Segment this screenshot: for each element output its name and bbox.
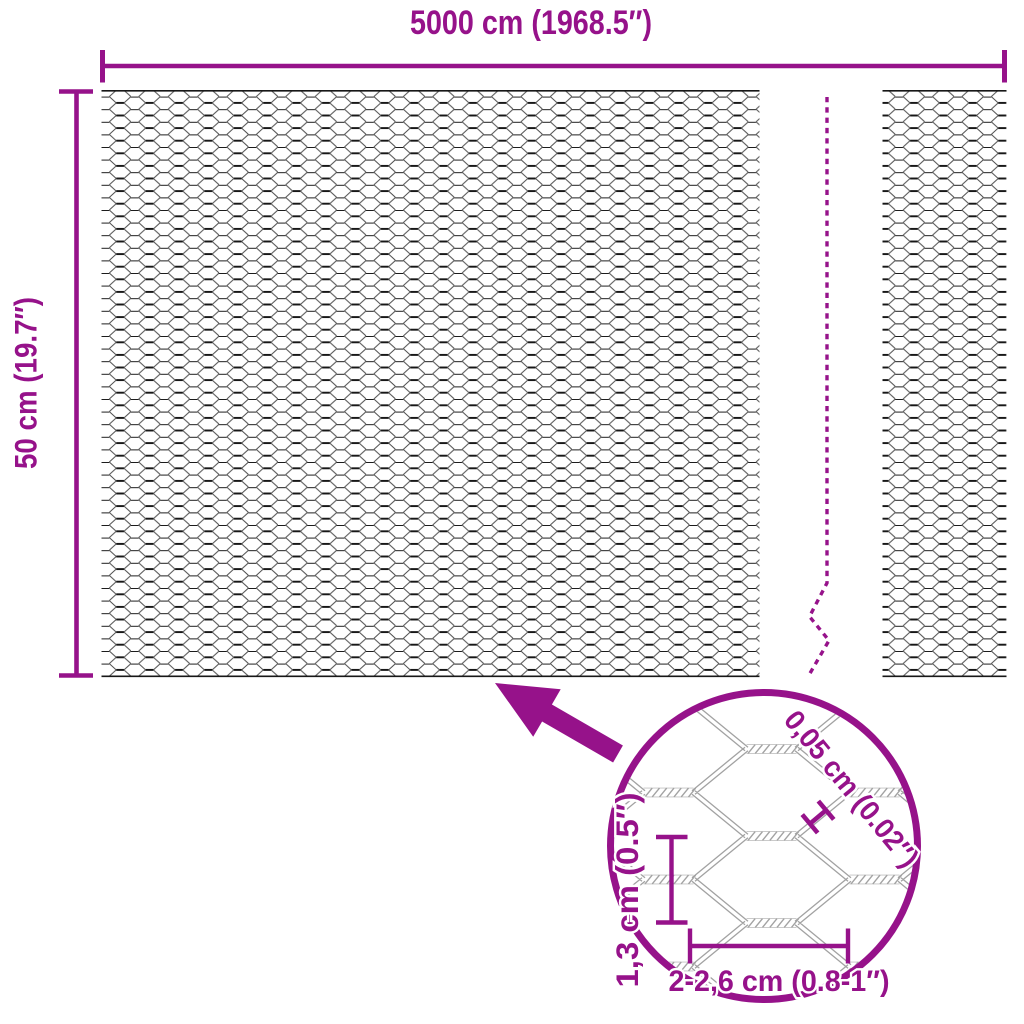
svg-text:50 cm (19.7″): 50 cm (19.7″) <box>8 297 44 469</box>
svg-text:2-2,6 cm (0.8-1″): 2-2,6 cm (0.8-1″) <box>669 965 890 998</box>
svg-text:5000 cm (1968.5″): 5000 cm (1968.5″) <box>410 4 652 42</box>
svg-text:1,3 cm (0.5″): 1,3 cm (0.5″) <box>609 793 645 988</box>
